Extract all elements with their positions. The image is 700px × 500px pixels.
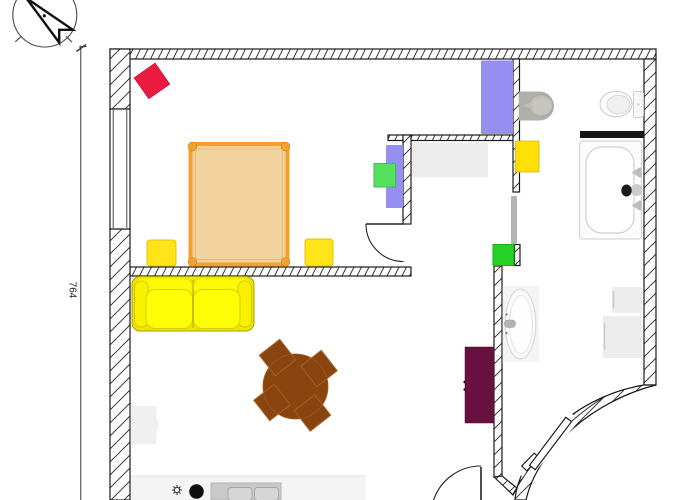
svg-text:764: 764: [67, 282, 78, 299]
